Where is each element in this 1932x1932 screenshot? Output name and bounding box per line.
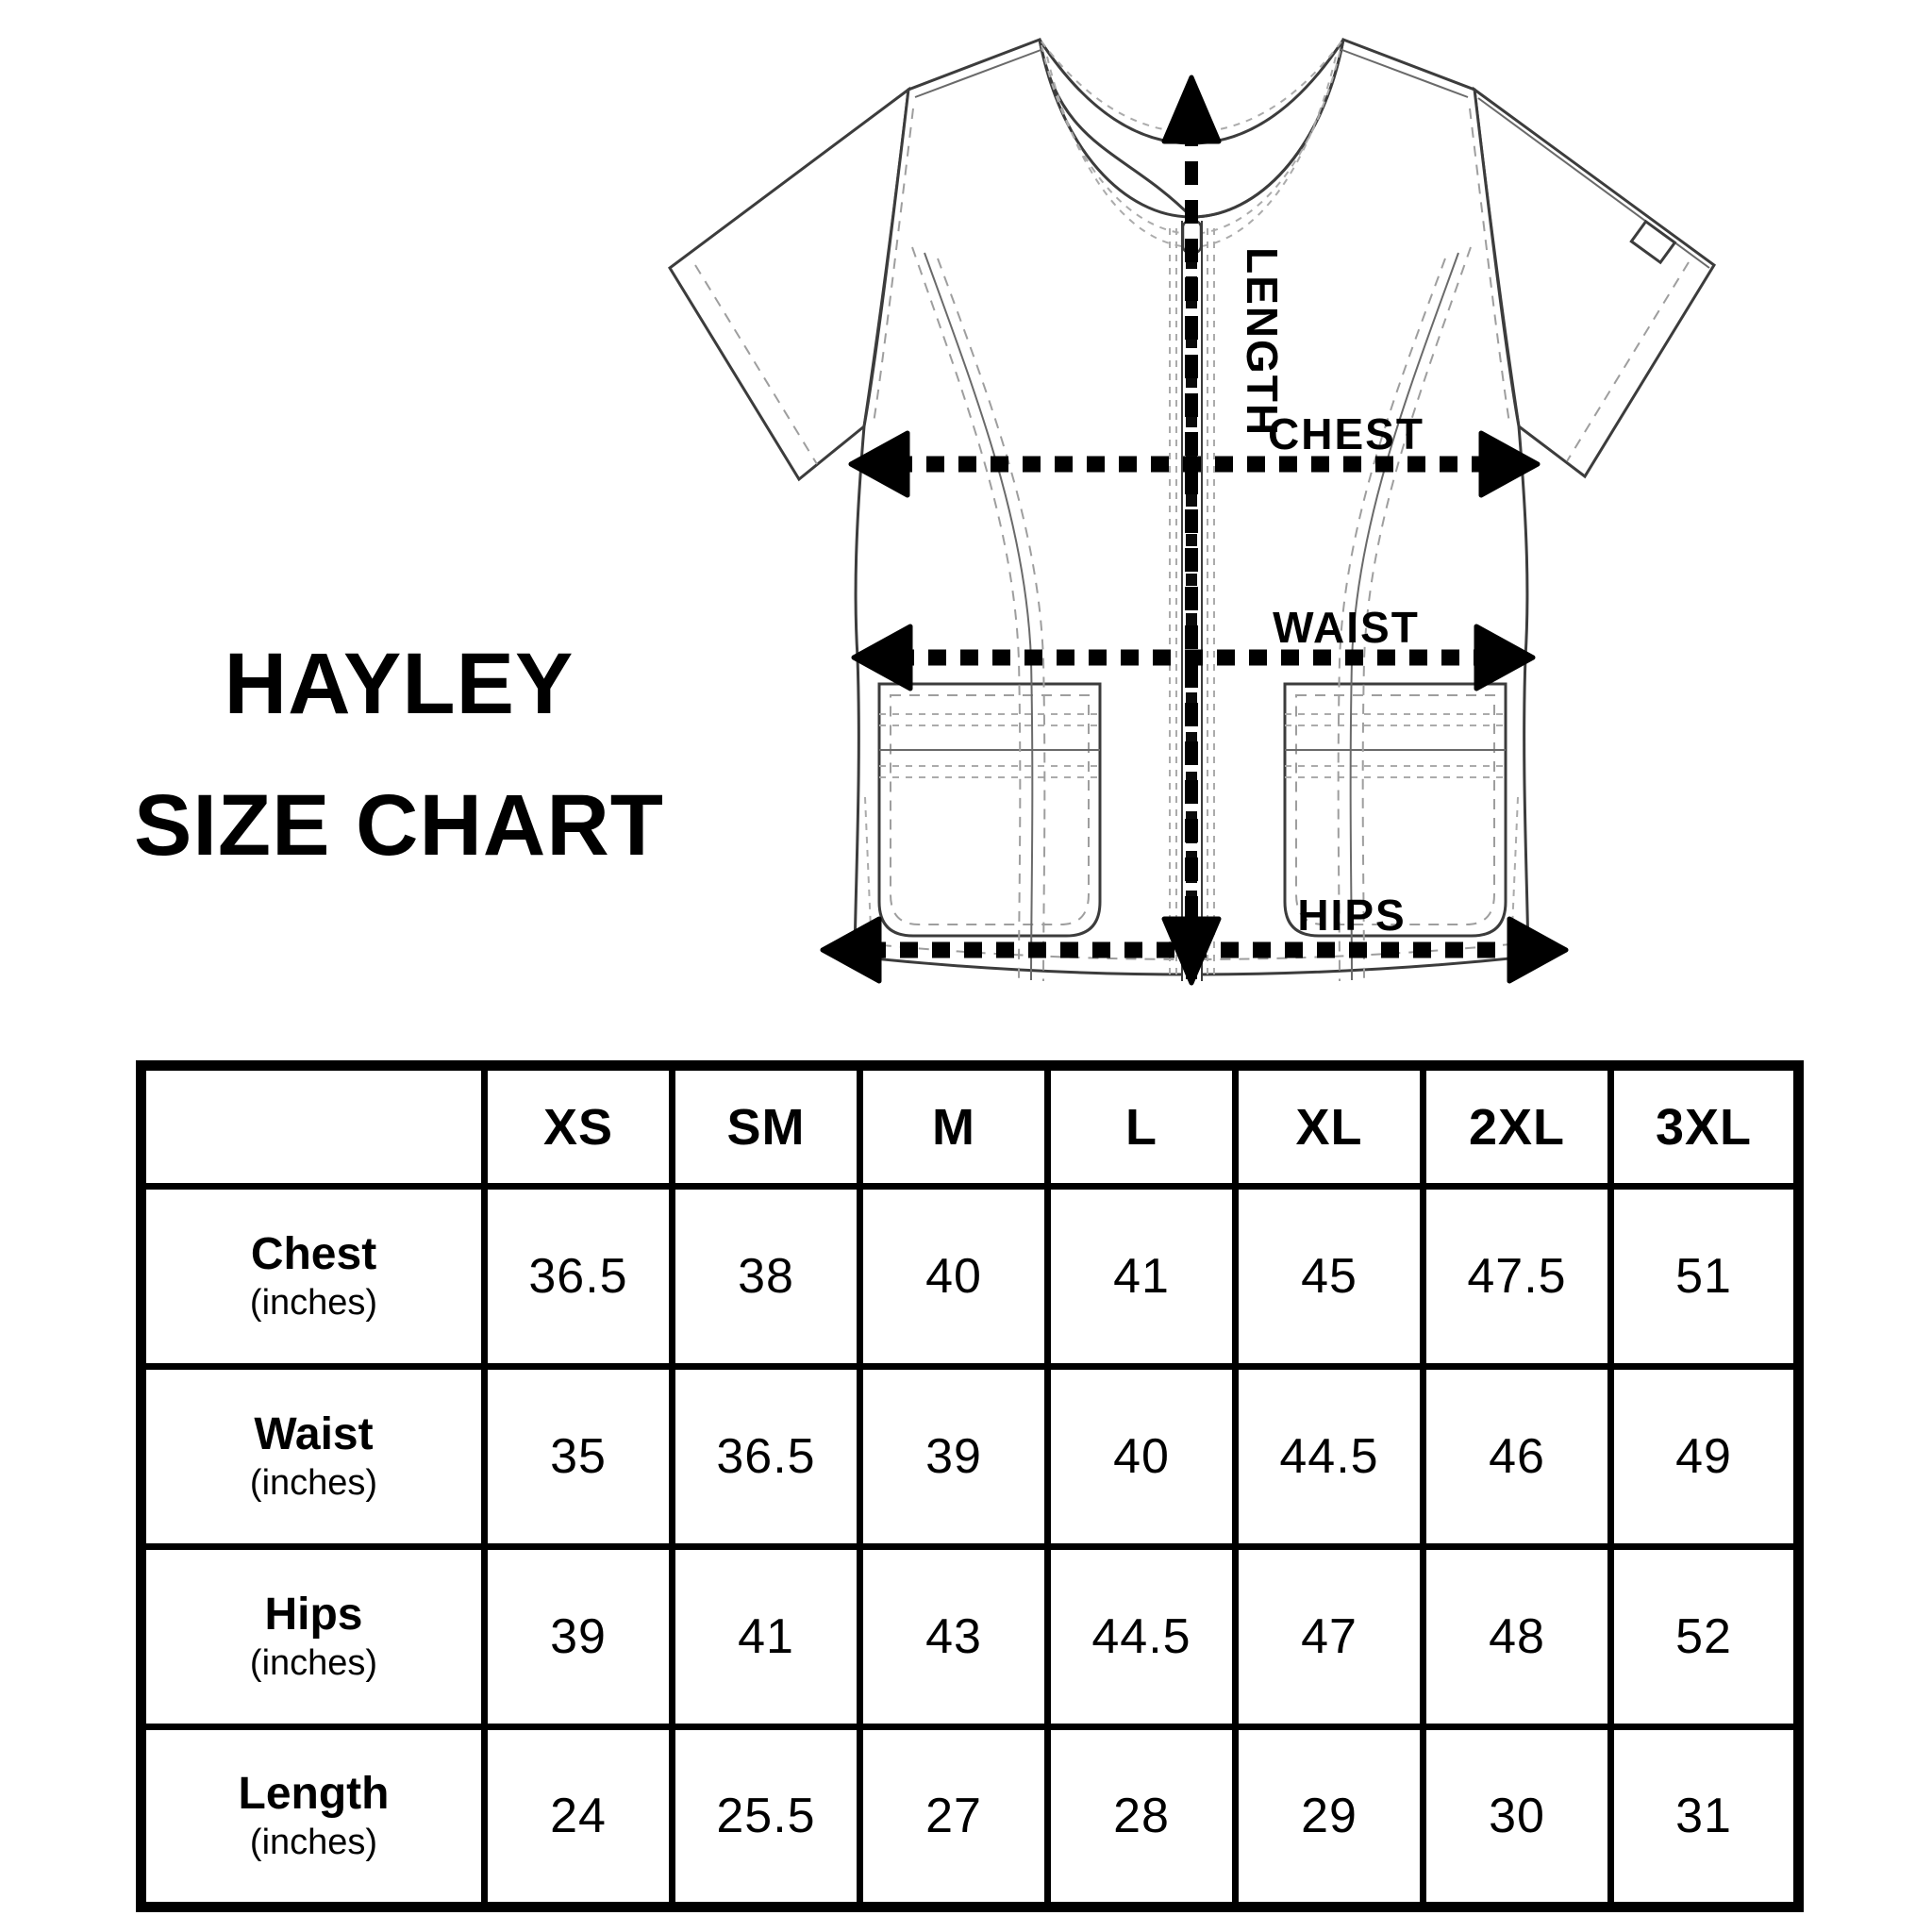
length-xs: 24	[485, 1727, 673, 1907]
garment-diagram: LENGTH CHEST WAIST HIPS	[0, 0, 1932, 1038]
row-label: Length	[146, 1768, 481, 1821]
waist-sm: 36.5	[673, 1367, 860, 1547]
chest-l: 41	[1048, 1187, 1236, 1367]
hips-label: HIPS	[1297, 891, 1406, 940]
col-header-l: L	[1048, 1066, 1236, 1187]
col-header-xl: XL	[1236, 1066, 1424, 1187]
length-label: LENGTH	[1238, 247, 1287, 437]
hips-xl: 47	[1236, 1547, 1424, 1727]
row-unit: (inches)	[146, 1821, 481, 1864]
hips-arrowhead-left	[823, 919, 879, 981]
hips-sm: 41	[673, 1547, 860, 1727]
row-unit: (inches)	[146, 1641, 481, 1685]
corner-cell	[142, 1066, 485, 1187]
row-header-waist: Waist (inches)	[142, 1367, 485, 1547]
waist-xs: 35	[485, 1367, 673, 1547]
hips-m: 43	[860, 1547, 1048, 1727]
length-sm: 25.5	[673, 1727, 860, 1907]
chest-sm: 38	[673, 1187, 860, 1367]
table-row-length: Length (inches) 24 25.5 27 28 29 30 31	[142, 1727, 1799, 1907]
left-pocket-drawing	[879, 684, 1100, 936]
table-row-waist: Waist (inches) 35 36.5 39 40 44.5 46 49	[142, 1367, 1799, 1547]
chest-label: CHEST	[1268, 409, 1424, 458]
chest-m: 40	[860, 1187, 1048, 1367]
col-header-3xl: 3XL	[1611, 1066, 1799, 1187]
col-header-m: M	[860, 1066, 1048, 1187]
length-arrowhead-top	[1164, 77, 1219, 142]
waist-l: 40	[1048, 1367, 1236, 1547]
row-unit: (inches)	[146, 1461, 481, 1505]
chest-xs: 36.5	[485, 1187, 673, 1367]
row-header-chest: Chest (inches)	[142, 1187, 485, 1367]
chest-2xl: 47.5	[1424, 1187, 1611, 1367]
col-header-xs: XS	[485, 1066, 673, 1187]
chest-xl: 45	[1236, 1187, 1424, 1367]
hips-xs: 39	[485, 1547, 673, 1727]
waist-3xl: 49	[1611, 1367, 1799, 1547]
size-table: XS SM M L XL 2XL 3XL Chest (inches) 36.5…	[136, 1060, 1804, 1912]
col-header-2xl: 2XL	[1424, 1066, 1611, 1187]
length-xl: 29	[1236, 1727, 1424, 1907]
hips-2xl: 48	[1424, 1547, 1611, 1727]
row-label: Waist	[146, 1408, 481, 1461]
hips-l: 44.5	[1048, 1547, 1236, 1727]
row-unit: (inches)	[146, 1281, 481, 1324]
waist-xl: 44.5	[1236, 1367, 1424, 1547]
hips-3xl: 52	[1611, 1547, 1799, 1727]
length-l: 28	[1048, 1727, 1236, 1907]
waist-m: 39	[860, 1367, 1048, 1547]
length-2xl: 30	[1424, 1727, 1611, 1907]
row-label: Hips	[146, 1589, 481, 1641]
row-label: Chest	[146, 1228, 481, 1281]
table-row-chest: Chest (inches) 36.5 38 40 41 45 47.5 51	[142, 1187, 1799, 1367]
size-chart-page: HAYLEY SIZE CHART	[0, 0, 1932, 1932]
size-table-header-row: XS SM M L XL 2XL 3XL	[142, 1066, 1799, 1187]
waist-label: WAIST	[1273, 603, 1420, 652]
col-header-sm: SM	[673, 1066, 860, 1187]
waist-2xl: 46	[1424, 1367, 1611, 1547]
length-m: 27	[860, 1727, 1048, 1907]
row-header-hips: Hips (inches)	[142, 1547, 485, 1727]
hips-arrowhead-right	[1509, 919, 1566, 981]
chest-3xl: 51	[1611, 1187, 1799, 1367]
row-header-length: Length (inches)	[142, 1727, 485, 1907]
length-3xl: 31	[1611, 1727, 1799, 1907]
table-row-hips: Hips (inches) 39 41 43 44.5 47 48 52	[142, 1547, 1799, 1727]
